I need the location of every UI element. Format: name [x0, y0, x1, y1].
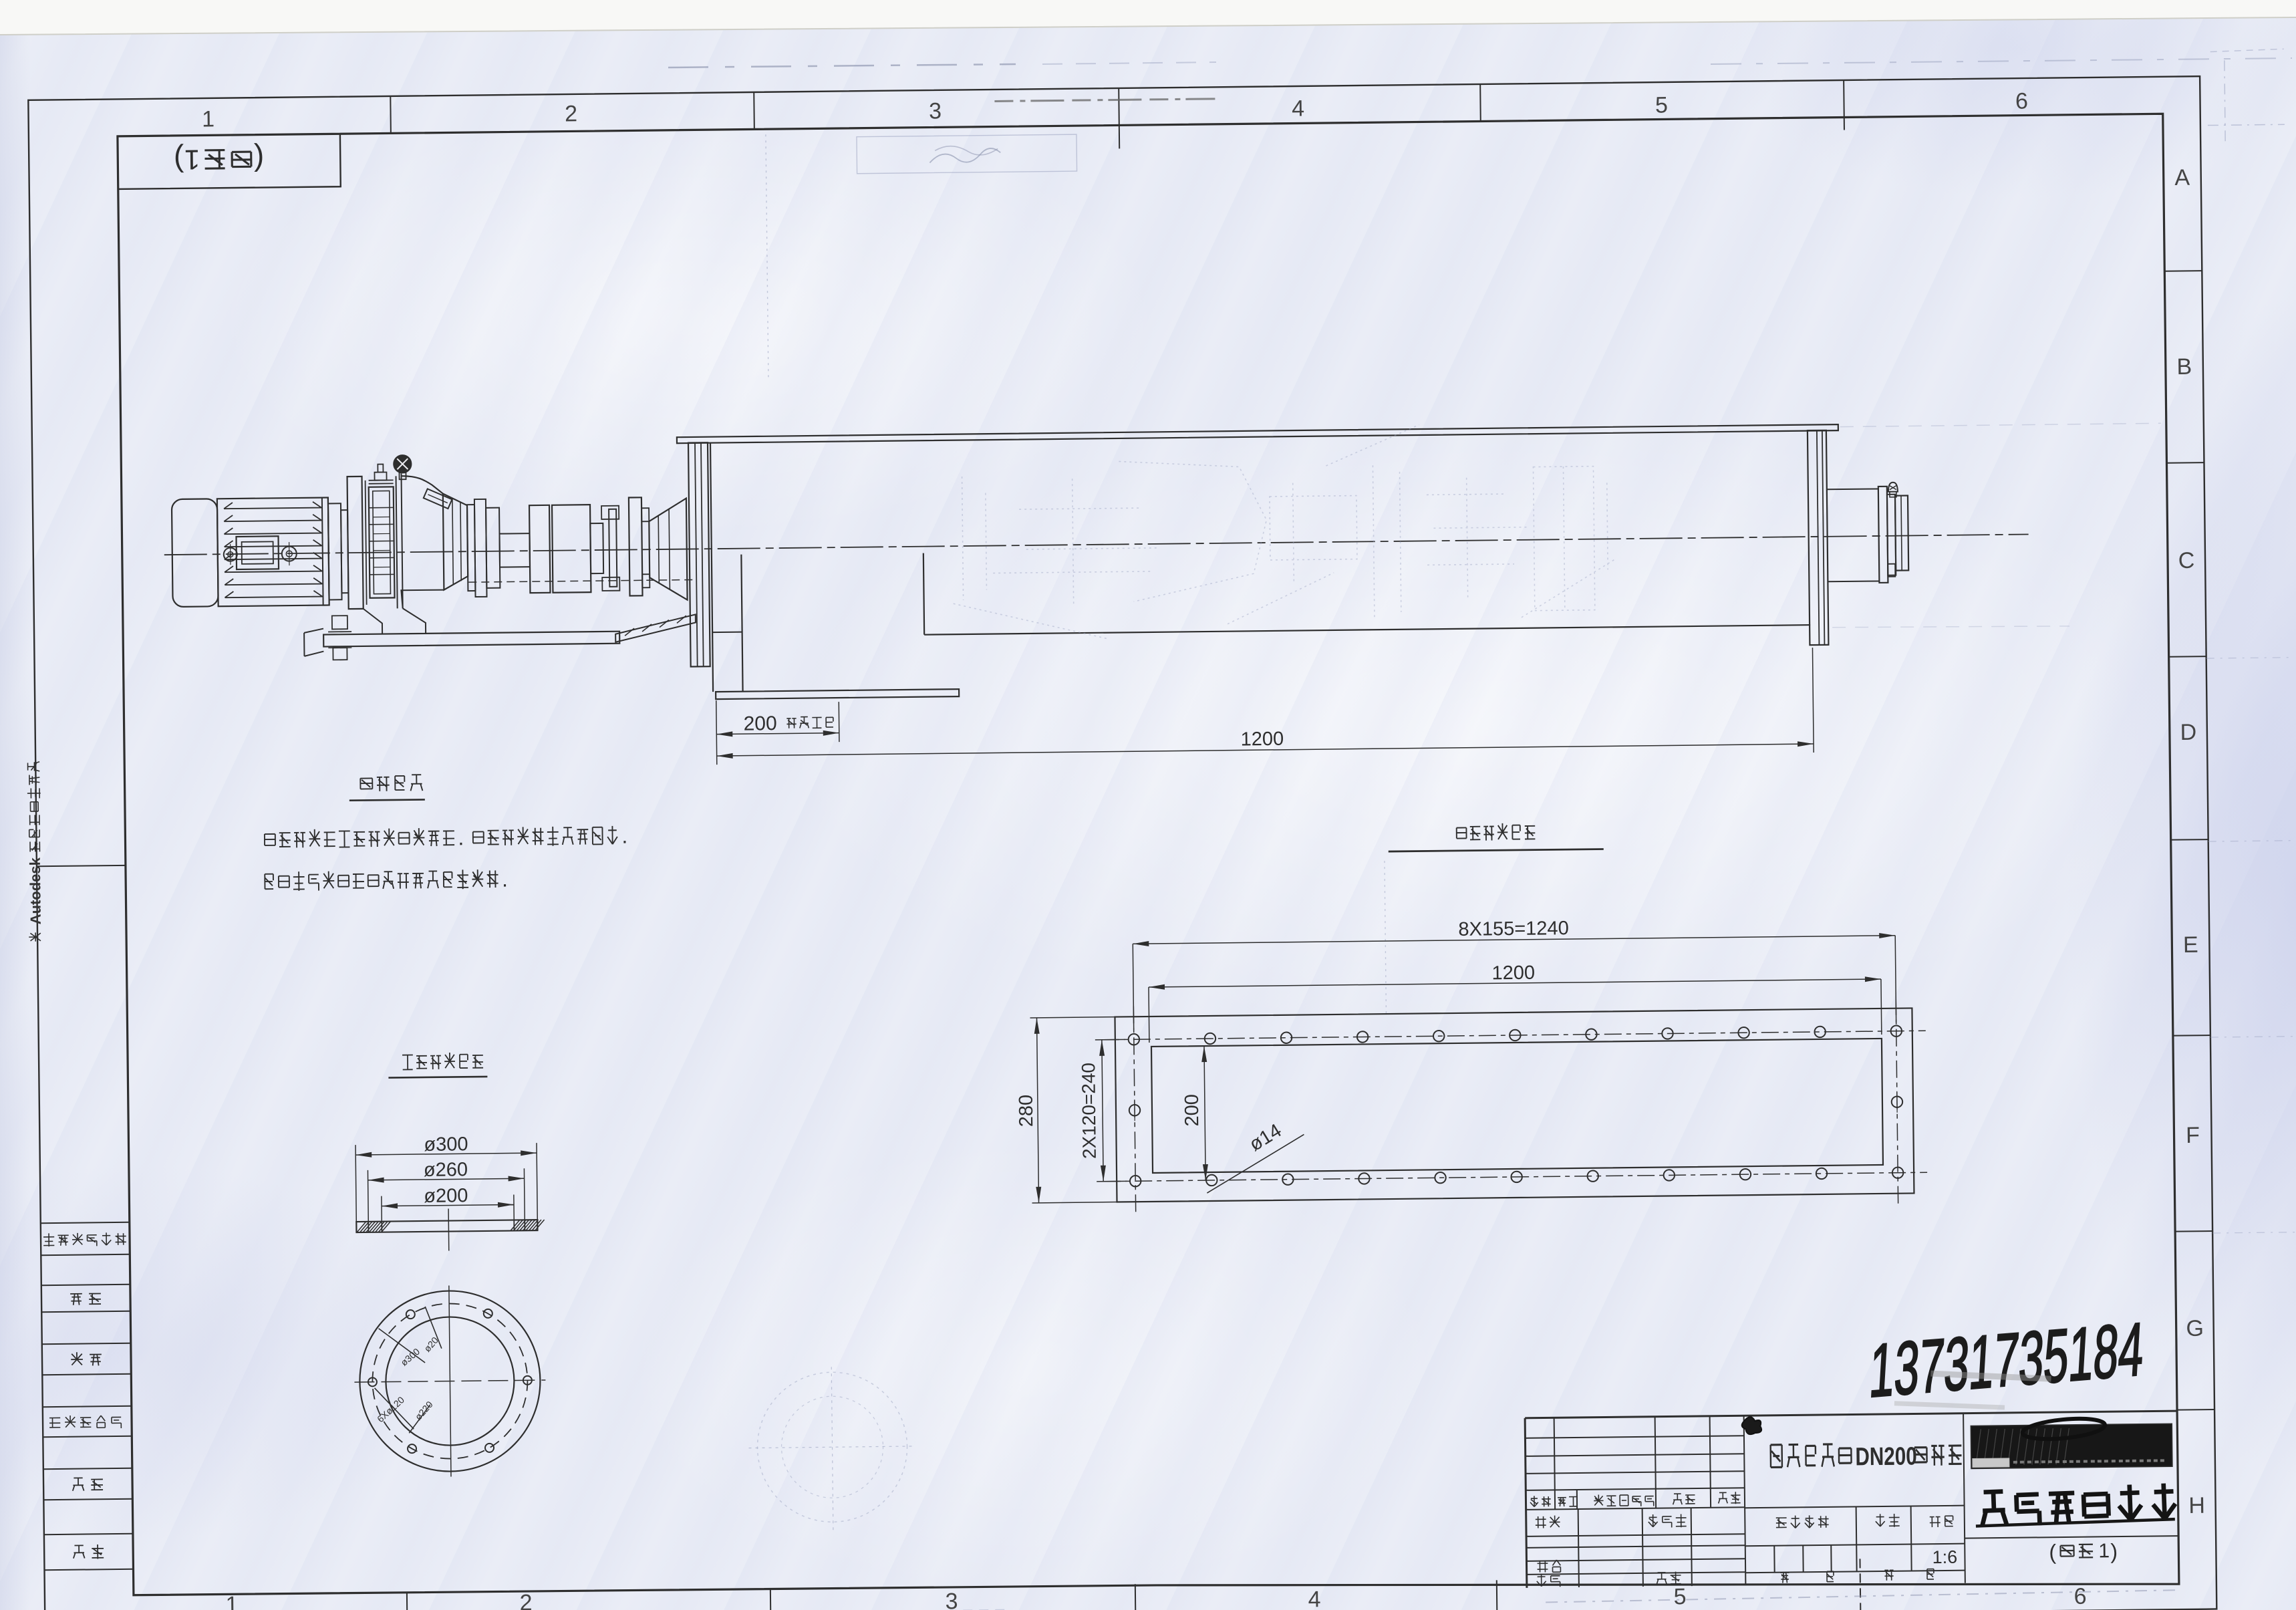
svg-text:F: F — [2186, 1123, 2200, 1148]
svg-text:1: 1 — [2098, 1540, 2110, 1562]
svg-text:1: 1 — [202, 106, 214, 132]
svg-text:ø220: ø220 — [413, 1399, 435, 1422]
svg-text:13731735184: 13731735184 — [1867, 1307, 2146, 1413]
svg-text:280: 280 — [1016, 1095, 1038, 1127]
svg-text:3: 3 — [945, 1589, 958, 1610]
svg-text:C: C — [2178, 548, 2195, 573]
svg-text:E: E — [2183, 932, 2198, 958]
svg-text:3: 3 — [929, 98, 942, 124]
svg-text:6Xø120: 6Xø120 — [375, 1394, 406, 1424]
svg-text:ø200: ø200 — [424, 1185, 468, 1207]
svg-text:ø260: ø260 — [424, 1159, 468, 1181]
svg-text:1200: 1200 — [1491, 962, 1535, 984]
svg-text:4: 4 — [1292, 96, 1304, 121]
svg-text:): ) — [2110, 1539, 2118, 1563]
svg-text:5: 5 — [1655, 92, 1668, 118]
svg-text:2: 2 — [565, 101, 577, 126]
svg-text:A: A — [2174, 165, 2190, 190]
svg-text:5: 5 — [1673, 1584, 1686, 1609]
svg-text:1: 1 — [225, 1592, 238, 1610]
svg-text:8X155=1240: 8X155=1240 — [1458, 918, 1569, 940]
svg-text:(: ( — [253, 142, 265, 177]
svg-text:.: . — [502, 867, 508, 892]
svg-text:2X120=240: 2X120=240 — [1078, 1063, 1100, 1159]
svg-text:D: D — [2180, 720, 2196, 745]
svg-text:): ) — [174, 144, 184, 178]
svg-text:1:6: 1:6 — [1932, 1547, 1958, 1567]
svg-text:B: B — [2176, 354, 2192, 380]
svg-text:4: 4 — [1308, 1587, 1320, 1610]
svg-text:(: ( — [2049, 1540, 2056, 1564]
svg-text:DN200: DN200 — [1855, 1442, 1917, 1471]
svg-text:200: 200 — [1181, 1094, 1203, 1127]
svg-text:ø14: ø14 — [1246, 1120, 1285, 1156]
svg-text:1: 1 — [184, 144, 200, 176]
svg-text:ø300: ø300 — [398, 1346, 422, 1368]
svg-text:G: G — [2186, 1316, 2204, 1341]
svg-text:ø300: ø300 — [424, 1133, 468, 1156]
svg-text:H: H — [2188, 1493, 2205, 1518]
svg-text:200: 200 — [743, 712, 776, 735]
svg-text:Autodesk: Autodesk — [27, 857, 44, 924]
svg-text:6: 6 — [2015, 88, 2028, 114]
svg-text:.: . — [621, 824, 627, 848]
svg-text:.: . — [458, 825, 464, 849]
svg-text:1200: 1200 — [1240, 728, 1284, 751]
svg-text:2: 2 — [519, 1590, 532, 1610]
svg-text:6: 6 — [2073, 1584, 2086, 1609]
